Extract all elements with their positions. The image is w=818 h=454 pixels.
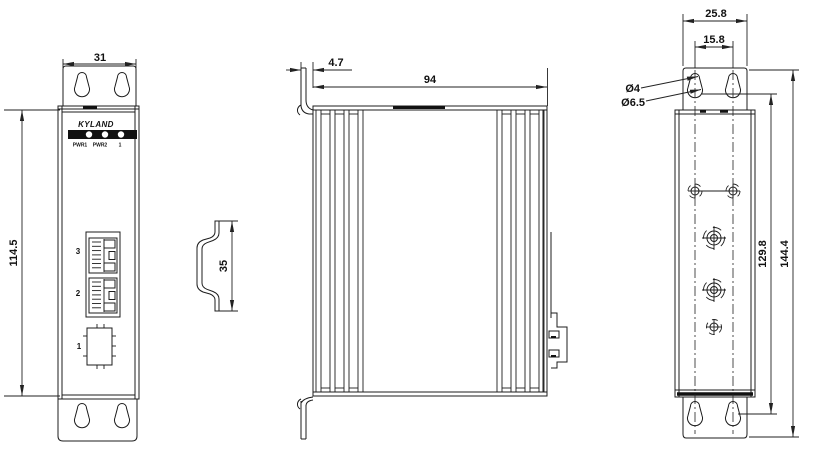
svg-text:Ø4: Ø4	[625, 83, 641, 95]
rj45-port-2	[89, 278, 117, 313]
dimension-side-flange: 4.7	[286, 57, 352, 88]
svg-text:15.8: 15.8	[703, 34, 724, 46]
led-label-port: 1	[119, 143, 122, 149]
device-body-side	[313, 106, 547, 396]
din-clip-bracket	[549, 313, 567, 368]
drawing-canvas: KYLAND PWR1 PWR2 1	[0, 0, 818, 454]
back-view: 25.8 15.8 Ø4 Ø6.5 129.8	[621, 8, 799, 438]
svg-text:129.8: 129.8	[757, 240, 769, 268]
din-rail-profile: 35	[197, 221, 238, 311]
svg-text:4.7: 4.7	[328, 57, 343, 69]
svg-text:144.4: 144.4	[779, 239, 791, 267]
led-label-pwr2: PWR2	[93, 143, 108, 149]
front-flange-top	[297, 68, 313, 115]
led-port1	[118, 131, 124, 137]
front-flange-bottom	[297, 397, 313, 439]
svg-text:35: 35	[218, 260, 230, 272]
dimension-front-height: 114.5	[4, 110, 60, 396]
led-pwr2	[102, 131, 108, 137]
svg-text:Ø6.5: Ø6.5	[621, 97, 645, 109]
svg-text:94: 94	[424, 74, 437, 86]
side-view: 4.7 94	[286, 57, 567, 439]
brand-logo: KYLAND	[78, 120, 114, 129]
sfp-port-1	[83, 324, 116, 369]
dimension-back-hole-spacing: 15.8	[695, 34, 733, 68]
port-label-1: 1	[77, 342, 82, 351]
svg-text:31: 31	[94, 52, 106, 64]
led-label-pwr1: PWR1	[73, 143, 88, 149]
front-view: KYLAND PWR1 PWR2 1	[4, 52, 139, 441]
svg-text:25.8: 25.8	[705, 8, 726, 20]
technical-drawing: KYLAND PWR1 PWR2 1	[0, 0, 818, 454]
svg-text:114.5: 114.5	[8, 240, 20, 267]
dimension-side-depth: 94	[313, 68, 548, 106]
device-body-back	[675, 110, 755, 397]
port-label-2: 2	[76, 289, 81, 298]
rj45-port-3	[89, 238, 117, 273]
led-pwr1	[86, 131, 92, 137]
port-label-3: 3	[76, 247, 81, 256]
